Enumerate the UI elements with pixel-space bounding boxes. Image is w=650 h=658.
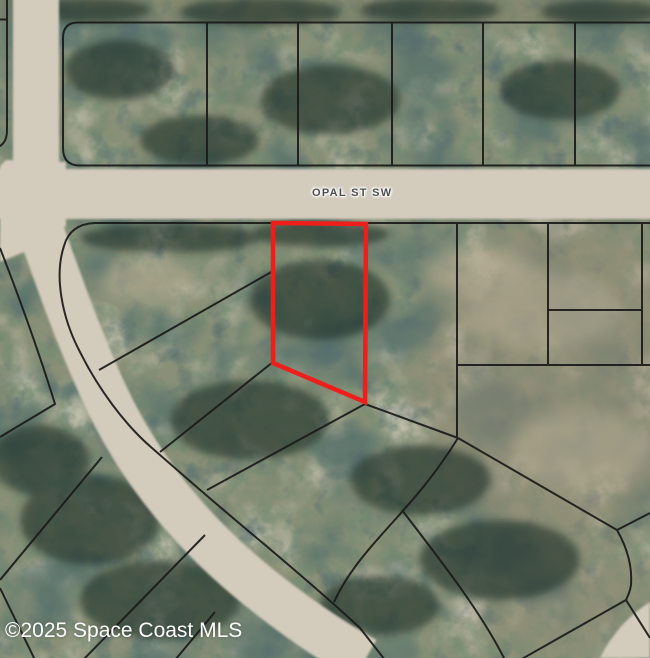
copyright-watermark: ©2025 Space Coast MLS: [5, 619, 242, 643]
satellite-imagery: [0, 0, 650, 658]
street-label: OPAL ST SW: [312, 187, 392, 199]
satellite-map: OPAL ST SW ©2025 Space Coast MLS: [0, 0, 650, 658]
